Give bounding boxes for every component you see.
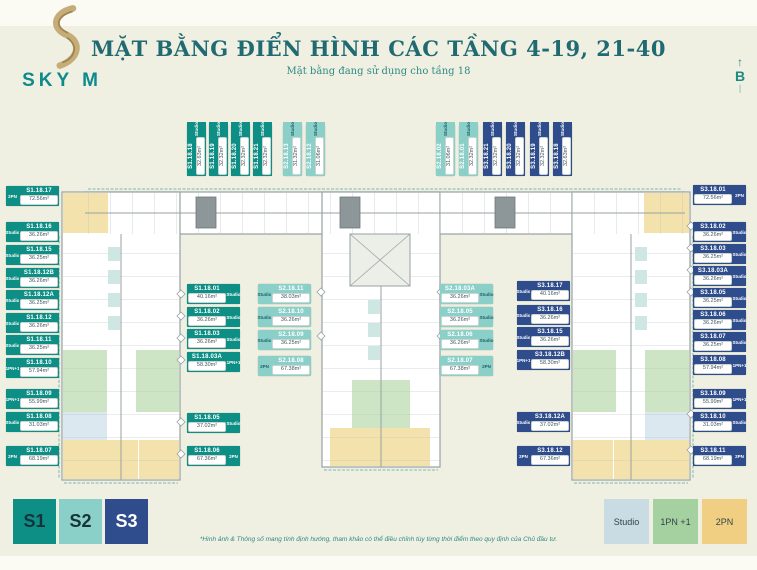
tower-legend: S1 S2 S3 — [13, 499, 148, 544]
unit-area: 36.26m² — [531, 314, 569, 323]
unit-code: S1.18.17 — [20, 188, 58, 195]
unit-badges-layer: 2PN S1.18.17 72.56m² Studio S1.18.16 36.… — [0, 0, 757, 570]
unit-code: S2.18.12 — [307, 137, 314, 175]
unit-area: 32.32m² — [468, 137, 477, 175]
unit-type-legend-box: 1PN +1 — [653, 499, 698, 544]
unit-badge[interactable]: Studio S2.18.11 38.03m² — [258, 284, 311, 304]
unit-label: S3.18.01 72.56m² — [693, 185, 733, 205]
unit-area: 67.38m² — [272, 365, 310, 374]
unit-label: S3.18.09 55.99m² — [693, 389, 733, 409]
unit-badge[interactable]: Studio S1.18.08 31.03m² — [6, 412, 59, 432]
unit-code: S1.18.01 — [188, 286, 226, 293]
unit-badge[interactable]: Studio S3.18.21 32.32m² — [483, 124, 502, 176]
unit-code: S3.18.03A — [694, 268, 732, 275]
unit-code: S3.18.06 — [694, 312, 732, 319]
unit-badge[interactable]: Studio S1.18.21 32.32m² — [253, 124, 272, 176]
unit-code: S3.18.15 — [531, 329, 569, 336]
unit-badge[interactable]: Studio S3.18.06 36.26m² — [693, 310, 746, 330]
unit-badge[interactable]: Studio S2.18.02 31.06m² — [436, 124, 455, 176]
unit-type-tag: Studio — [517, 281, 530, 301]
unit-code: S1.18.16 — [20, 224, 58, 231]
unit-label: S3.18.12 67.36m² — [530, 446, 570, 466]
unit-code: S3.18.19 — [531, 137, 538, 175]
unit-area: 31.06m² — [315, 137, 324, 175]
unit-code: S3.18.05 — [694, 290, 732, 297]
unit-type-tag: 2PN — [733, 446, 746, 466]
unit-type-tag: Studio — [231, 122, 250, 136]
unit-code: S2.18.08 — [272, 358, 310, 365]
unit-area: 32.63m² — [562, 137, 571, 175]
unit-label: S3.18.12B 58.30m² — [530, 350, 570, 370]
unit-label: S2.18.13 31.32m² — [283, 136, 302, 176]
unit-badge[interactable]: Studio S3.18.19 32.32m² — [530, 124, 549, 176]
unit-area: 57.94m² — [20, 367, 58, 376]
unit-badge[interactable]: Studio S3.18.12A 37.02m² — [517, 412, 570, 432]
unit-label: S2.18.03A 36.26m² — [440, 284, 480, 304]
unit-code: S1.18.10 — [20, 360, 58, 367]
unit-code: S1.18.21 — [254, 137, 261, 175]
unit-badge[interactable]: Studio S2.18.03A 36.26m² — [440, 284, 493, 304]
unit-badge[interactable]: Studio S3.18.18 32.63m² — [553, 124, 572, 176]
unit-label: S2.18.09 36.25m² — [271, 330, 311, 350]
unit-area: 36.26m² — [694, 231, 732, 240]
unit-badge[interactable]: Studio S3.18.15 36.26m² — [517, 327, 570, 347]
unit-code: S2.18.01 — [460, 137, 467, 175]
unit-label: S3.18.07 36.25m² — [693, 332, 733, 352]
unit-badge[interactable]: Studio S1.18.18 32.63m² — [187, 124, 206, 176]
unit-type-tag: 2PN — [258, 356, 271, 376]
unit-label: S1.18.02 36.26m² — [187, 307, 227, 327]
unit-type-tag: 1PN+1 — [227, 352, 240, 372]
unit-code: S1.18.19 — [210, 137, 217, 175]
unit-badge[interactable]: 2PN S3.18.01 72.56m² — [693, 185, 746, 205]
unit-area: 55.99m² — [20, 398, 58, 407]
unit-type-tag: 2PN — [6, 186, 19, 206]
unit-type-tag: Studio — [530, 122, 549, 136]
unit-type-tag: 1PN+1 — [6, 389, 19, 409]
unit-area: 36.26m² — [20, 322, 58, 331]
unit-type-legend: Studio 1PN +1 2PN — [604, 499, 747, 544]
unit-badge[interactable]: Studio S3.18.02 36.26m² — [693, 222, 746, 242]
unit-type-tag: Studio — [480, 330, 493, 350]
unit-type-tag: Studio — [6, 335, 19, 355]
unit-type-tag: 1PN+1 — [733, 355, 746, 375]
unit-label: S2.18.02 31.06m² — [436, 136, 455, 176]
unit-area: 68.19m² — [20, 455, 58, 464]
unit-area: 36.25m² — [694, 341, 732, 350]
unit-area: 40.16m² — [531, 290, 569, 299]
unit-code: S2.18.07 — [441, 358, 479, 365]
unit-type-tag: Studio — [517, 305, 530, 325]
unit-badge[interactable]: 2PN S1.18.07 68.19m² — [6, 446, 59, 466]
unit-badge[interactable]: Studio S1.18.12A 36.25m² — [6, 290, 59, 310]
unit-type-tag: Studio — [227, 284, 240, 304]
unit-area: 72.56m² — [694, 194, 732, 203]
unit-type-tag: Studio — [6, 290, 19, 310]
unit-area: 32.32m² — [515, 137, 524, 175]
unit-badge[interactable]: Studio S1.18.02 36.26m² — [187, 307, 240, 327]
unit-badge[interactable]: 1PN+1 S3.18.12B 58.30m² — [517, 350, 570, 370]
unit-badge[interactable]: Studio S1.18.01 40.16m² — [187, 284, 240, 304]
unit-area: 32.32m² — [240, 137, 249, 175]
unit-code: S1.18.11 — [20, 337, 58, 344]
unit-label: S2.18.08 67.38m² — [271, 356, 311, 376]
unit-area: 57.94m² — [694, 364, 732, 373]
unit-type-tag: Studio — [517, 327, 530, 347]
unit-badge[interactable]: 1PN+1 S1.18.09 55.99m² — [6, 389, 59, 409]
unit-code: S1.18.15 — [20, 247, 58, 254]
unit-code: S1.18.18 — [188, 137, 195, 175]
unit-badge[interactable]: 2PN S2.18.08 67.38m² — [258, 356, 311, 376]
unit-code: S3.18.21 — [484, 137, 491, 175]
unit-type-tag: Studio — [187, 122, 206, 136]
unit-badge[interactable]: Studio S2.18.09 36.25m² — [258, 330, 311, 350]
unit-code: S1.18.08 — [20, 414, 58, 421]
unit-code: S3.18.20 — [507, 137, 514, 175]
unit-area: 72.56m² — [20, 195, 58, 204]
unit-code: S1.18.06 — [188, 448, 226, 455]
unit-label: S1.18.12B 36.26m² — [19, 268, 59, 288]
unit-badge[interactable]: Studio S2.18.12 31.06m² — [306, 124, 325, 176]
unit-area: 36.26m² — [188, 316, 226, 325]
unit-code: S2.18.13 — [284, 137, 291, 175]
unit-code: S2.18.09 — [272, 332, 310, 339]
unit-label: S2.18.11 38.03m² — [271, 284, 311, 304]
unit-code: S1.18.02 — [188, 309, 226, 316]
unit-type-tag: Studio — [459, 122, 478, 136]
unit-type-tag: Studio — [483, 122, 502, 136]
unit-area: 55.99m² — [694, 398, 732, 407]
unit-label: S1.18.12 36.26m² — [19, 313, 59, 333]
unit-area: 36.26m² — [20, 231, 58, 240]
unit-area: 32.32m² — [218, 137, 227, 175]
unit-label: S3.18.05 36.25m² — [693, 288, 733, 308]
unit-label: S1.18.11 36.25m² — [19, 335, 59, 355]
unit-area: 38.03m² — [272, 293, 310, 302]
unit-code: S1.18.20 — [232, 137, 239, 175]
unit-code: S1.18.05 — [188, 415, 226, 422]
unit-code: S3.18.17 — [531, 283, 569, 290]
unit-area: 40.16m² — [188, 293, 226, 302]
unit-type-tag: Studio — [227, 329, 240, 349]
unit-area: 36.25m² — [20, 344, 58, 353]
unit-label: S3.18.17 40.16m² — [530, 281, 570, 301]
unit-badge[interactable]: Studio S3.18.07 36.25m² — [693, 332, 746, 352]
unit-type-tag: Studio — [258, 307, 271, 327]
unit-label: S1.18.08 31.03m² — [19, 412, 59, 432]
unit-label: S1.18.09 55.99m² — [19, 389, 59, 409]
unit-type-tag: 1PN+1 — [733, 389, 746, 409]
unit-label: S1.18.10 57.94m² — [19, 358, 59, 378]
unit-area: 36.26m² — [441, 293, 479, 302]
unit-type-tag: Studio — [733, 222, 746, 242]
unit-code: S2.18.03A — [441, 286, 479, 293]
unit-badge[interactable]: 1PN+1 S3.18.09 55.99m² — [693, 389, 746, 409]
unit-area: 58.30m² — [188, 361, 226, 370]
unit-code: S3.18.11 — [694, 448, 732, 455]
unit-type-tag: 2PN — [517, 446, 530, 466]
unit-label: S1.18.01 40.16m² — [187, 284, 227, 304]
unit-code: S3.18.09 — [694, 391, 732, 398]
unit-badge[interactable]: 1PN+1 S1.18.10 57.94m² — [6, 358, 59, 378]
unit-badge[interactable]: Studio S1.18.15 36.25m² — [6, 245, 59, 265]
unit-area: 32.32m² — [492, 137, 501, 175]
unit-area: 31.32m² — [292, 137, 301, 175]
unit-label: S3.18.16 36.26m² — [530, 305, 570, 325]
unit-badge[interactable]: Studio S3.18.03 36.25m² — [693, 244, 746, 264]
unit-badge[interactable]: Studio S1.18.16 36.26m² — [6, 222, 59, 242]
unit-badge[interactable]: Studio S2.18.13 31.32m² — [283, 124, 302, 176]
unit-area: 36.26m² — [441, 339, 479, 348]
unit-label: S3.18.08 57.94m² — [693, 355, 733, 375]
unit-badge[interactable]: Studio S1.18.19 32.32m² — [209, 124, 228, 176]
unit-badge[interactable]: Studio S3.18.16 36.26m² — [517, 305, 570, 325]
unit-type-tag: Studio — [733, 288, 746, 308]
unit-code: S2.18.11 — [272, 286, 310, 293]
floorplan-poster: SKY M MẶT BẰNG ĐIỂN HÌNH CÁC TẦNG 4-19, … — [0, 0, 757, 570]
unit-label: S3.18.10 31.03m² — [693, 412, 733, 432]
unit-badge[interactable]: Studio S3.18.17 40.16m² — [517, 281, 570, 301]
unit-area: 36.26m² — [531, 336, 569, 345]
unit-badge[interactable]: 2PN S2.18.07 67.38m² — [440, 356, 493, 376]
unit-badge[interactable]: Studio S2.18.10 36.26m² — [258, 307, 311, 327]
unit-area: 31.03m² — [694, 421, 732, 430]
unit-area: 36.25m² — [272, 339, 310, 348]
unit-area: 67.36m² — [188, 455, 226, 464]
unit-code: S3.18.01 — [694, 187, 732, 194]
unit-badge[interactable]: 2PN S1.18.17 72.56m² — [6, 186, 59, 206]
tower-legend-box: S2 — [59, 499, 102, 544]
unit-label: S1.18.05 37.02m² — [187, 413, 227, 433]
unit-label: S1.18.20 32.32m² — [231, 136, 250, 176]
unit-type-tag: Studio — [733, 310, 746, 330]
unit-badge[interactable]: 2PN S3.18.11 68.19m² — [693, 446, 746, 466]
unit-badge[interactable]: Studio S1.18.12B 36.26m² — [6, 268, 59, 288]
unit-type-tag: Studio — [283, 122, 302, 136]
unit-type-tag: Studio — [258, 330, 271, 350]
unit-label: S2.18.01 32.32m² — [459, 136, 478, 176]
unit-type-tag: Studio — [733, 412, 746, 432]
unit-type-tag: 2PN — [733, 185, 746, 205]
unit-area: 36.25m² — [20, 299, 58, 308]
unit-label: S1.18.06 67.36m² — [187, 446, 227, 466]
unit-type-tag: Studio — [209, 122, 228, 136]
unit-area: 32.63m² — [196, 137, 205, 175]
unit-code: S3.18.10 — [694, 414, 732, 421]
unit-area: 37.02m² — [531, 421, 569, 430]
unit-type-tag: Studio — [6, 245, 19, 265]
unit-code: S2.18.05 — [441, 309, 479, 316]
unit-badge[interactable]: Studio S2.18.06 36.26m² — [440, 330, 493, 350]
unit-type-tag: Studio — [6, 268, 19, 288]
unit-label: S1.18.03A 58.30m² — [187, 352, 227, 372]
unit-area: 36.25m² — [20, 254, 58, 263]
unit-type-tag: Studio — [227, 307, 240, 327]
unit-label: S1.18.12A 36.25m² — [19, 290, 59, 310]
unit-area: 36.26m² — [272, 316, 310, 325]
unit-area: 58.30m² — [531, 359, 569, 368]
unit-area: 32.32m² — [539, 137, 548, 175]
tower-legend-box: S1 — [13, 499, 56, 544]
unit-code: S3.18.03 — [694, 246, 732, 253]
unit-type-tag: Studio — [733, 332, 746, 352]
unit-label: S1.18.16 36.26m² — [19, 222, 59, 242]
unit-label: S2.18.10 36.26m² — [271, 307, 311, 327]
unit-area: 36.26m² — [188, 338, 226, 347]
unit-badge[interactable]: 2PN S3.18.12 67.36m² — [517, 446, 570, 466]
unit-area: 36.26m² — [694, 275, 732, 284]
unit-area: 31.06m² — [445, 137, 454, 175]
unit-label: S3.18.12A 37.02m² — [530, 412, 570, 432]
unit-area: 31.03m² — [20, 421, 58, 430]
unit-area: 36.26m² — [694, 319, 732, 328]
unit-type-tag: Studio — [258, 284, 271, 304]
unit-badge[interactable]: Studio S3.18.03A 36.26m² — [693, 266, 746, 286]
unit-area: 37.02m² — [188, 422, 226, 431]
unit-type-tag: 1PN+1 — [6, 358, 19, 378]
unit-code: S1.18.07 — [20, 448, 58, 455]
unit-area: 36.26m² — [441, 316, 479, 325]
unit-code: S2.18.10 — [272, 309, 310, 316]
unit-label: S2.18.06 36.26m² — [440, 330, 480, 350]
disclaimer-footnote: *Hình ảnh & Thông số mang tính định hướn… — [200, 536, 557, 543]
unit-label: S2.18.05 36.26m² — [440, 307, 480, 327]
unit-type-tag: Studio — [6, 313, 19, 333]
unit-label: S3.18.03A 36.26m² — [693, 266, 733, 286]
unit-type-legend-box: 2PN — [702, 499, 747, 544]
unit-badge[interactable]: Studio S3.18.20 32.32m² — [506, 124, 525, 176]
unit-code: S1.18.03 — [188, 331, 226, 338]
unit-area: 67.38m² — [441, 365, 479, 374]
unit-badge[interactable]: 2PN S1.18.06 67.36m² — [187, 446, 240, 466]
unit-type-tag: Studio — [480, 307, 493, 327]
unit-type-tag: Studio — [480, 284, 493, 304]
unit-type-tag: 2PN — [227, 446, 240, 466]
unit-area: 36.26m² — [20, 277, 58, 286]
unit-type-tag: Studio — [6, 222, 19, 242]
unit-type-tag: Studio — [6, 412, 19, 432]
unit-badge[interactable]: Studio S3.18.10 31.03m² — [693, 412, 746, 432]
unit-type-tag: Studio — [553, 122, 572, 136]
unit-label: S1.18.21 32.32m² — [253, 136, 272, 176]
unit-badge[interactable]: Studio S1.18.05 37.02m² — [187, 413, 240, 433]
unit-label: S1.18.15 36.25m² — [19, 245, 59, 265]
unit-badge[interactable]: Studio S1.18.20 32.32m² — [231, 124, 250, 176]
unit-badge[interactable]: Studio S2.18.05 36.26m² — [440, 307, 493, 327]
unit-label: S1.18.17 72.56m² — [19, 186, 59, 206]
unit-label: S1.18.07 68.19m² — [19, 446, 59, 466]
unit-code: S3.18.16 — [531, 307, 569, 314]
unit-code: S1.18.12A — [20, 292, 58, 299]
unit-type-tag: 1PN+1 — [517, 350, 530, 370]
unit-type-tag: Studio — [733, 266, 746, 286]
unit-label: S1.18.19 32.32m² — [209, 136, 228, 176]
unit-label: S3.18.20 32.32m² — [506, 136, 525, 176]
tower-legend-box: S3 — [105, 499, 148, 544]
unit-label: S3.18.21 32.32m² — [483, 136, 502, 176]
unit-code: S3.18.12 — [531, 448, 569, 455]
unit-label: S3.18.19 32.32m² — [530, 136, 549, 176]
unit-code: S1.18.03A — [188, 354, 226, 361]
unit-code: S3.18.18 — [554, 137, 561, 175]
unit-code: S1.18.12 — [20, 315, 58, 322]
unit-badge[interactable]: 1PN+1 S3.18.08 57.94m² — [693, 355, 746, 375]
unit-area: 32.32m² — [262, 137, 271, 175]
unit-type-tag: Studio — [306, 122, 325, 136]
unit-area: 36.25m² — [694, 297, 732, 306]
unit-area: 67.36m² — [531, 455, 569, 464]
unit-code: S3.18.07 — [694, 334, 732, 341]
unit-area: 68.19m² — [694, 455, 732, 464]
unit-type-legend-box: Studio — [604, 499, 649, 544]
unit-label: S3.18.11 68.19m² — [693, 446, 733, 466]
unit-code: S3.18.08 — [694, 357, 732, 364]
unit-code: S2.18.02 — [437, 137, 444, 175]
unit-type-tag: Studio — [253, 122, 272, 136]
unit-badge[interactable]: Studio S1.18.03 36.26m² — [187, 329, 240, 349]
unit-label: S1.18.03 36.26m² — [187, 329, 227, 349]
unit-code: S3.18.12A — [531, 414, 569, 421]
unit-label: S2.18.07 67.38m² — [440, 356, 480, 376]
unit-label: S3.18.18 32.63m² — [553, 136, 572, 176]
unit-badge[interactable]: Studio S3.18.05 36.25m² — [693, 288, 746, 308]
unit-badge[interactable]: Studio S1.18.11 36.25m² — [6, 335, 59, 355]
unit-code: S1.18.09 — [20, 391, 58, 398]
unit-label: S3.18.15 36.26m² — [530, 327, 570, 347]
unit-label: S1.18.18 32.63m² — [187, 136, 206, 176]
unit-type-tag: Studio — [506, 122, 525, 136]
unit-type-tag: Studio — [733, 244, 746, 264]
unit-code: S2.18.06 — [441, 332, 479, 339]
unit-badge[interactable]: 1PN+1 S1.18.03A 58.30m² — [187, 352, 240, 372]
unit-label: S2.18.12 31.06m² — [306, 136, 325, 176]
unit-type-tag: 2PN — [480, 356, 493, 376]
unit-type-tag: Studio — [227, 413, 240, 433]
unit-type-tag: Studio — [436, 122, 455, 136]
unit-type-tag: Studio — [517, 412, 530, 432]
unit-label: S3.18.06 36.26m² — [693, 310, 733, 330]
unit-label: S3.18.03 36.25m² — [693, 244, 733, 264]
unit-area: 36.25m² — [694, 253, 732, 262]
unit-code: S3.18.02 — [694, 224, 732, 231]
unit-code: S3.18.12B — [531, 352, 569, 359]
unit-code: S1.18.12B — [20, 270, 58, 277]
unit-badge[interactable]: Studio S2.18.01 32.32m² — [459, 124, 478, 176]
unit-badge[interactable]: Studio S1.18.12 36.26m² — [6, 313, 59, 333]
unit-label: S3.18.02 36.26m² — [693, 222, 733, 242]
unit-type-tag: 2PN — [6, 446, 19, 466]
